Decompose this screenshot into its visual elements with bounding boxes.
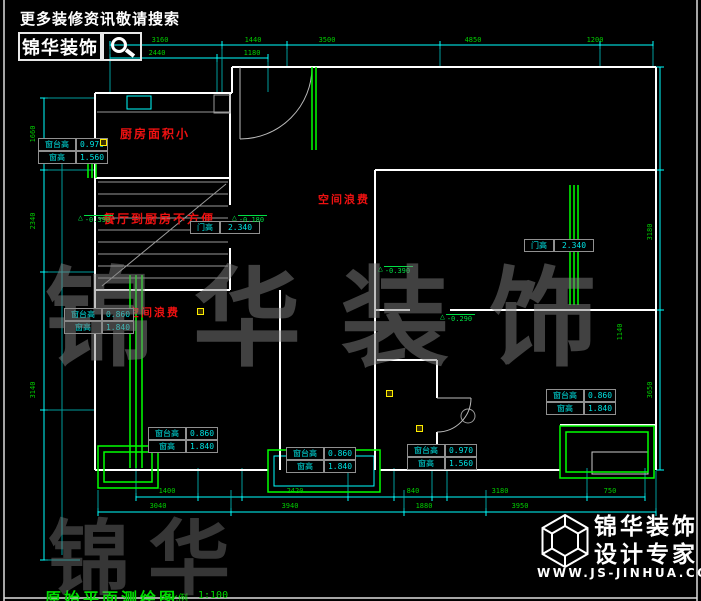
dimension-label: 2440 [149, 49, 166, 57]
dimension-label: 1440 [245, 36, 262, 44]
table-label: 窗台高 [546, 389, 584, 402]
dimension-label: 2340 [29, 213, 37, 230]
watermark-char: 装 [341, 232, 449, 388]
bay-inner-rect [592, 452, 648, 474]
table-label: 窗台高 [148, 427, 186, 440]
dimension-label: 2420 [287, 487, 304, 495]
search-icon-box [102, 32, 142, 61]
dimension-label: 3180 [492, 487, 509, 495]
switch-marker [416, 425, 423, 432]
dimension-label: 1180 [244, 49, 261, 57]
brand-logo-text: 锦华装饰 [22, 34, 98, 60]
watermark-char: 锦 [48, 492, 130, 601]
table-value: 0.860 [186, 427, 218, 440]
table-label: 窗高 [38, 151, 76, 164]
dimension-label: 4850 [465, 36, 482, 44]
table-label: 窗高 [546, 402, 584, 415]
watermark-partial: 锦华 [48, 492, 230, 601]
window-height-table: 窗台高0.860窗高1.840 [148, 427, 218, 453]
dimension-label: 3940 [282, 502, 299, 510]
dimension-label: 1880 [416, 502, 433, 510]
table-label: 窗台高 [407, 444, 445, 457]
table-label: 窗台高 [38, 138, 76, 151]
defect-annotation: 空间浪费 [318, 191, 370, 207]
dimension-label: 3180 [646, 224, 654, 241]
window-height-table: 窗台高0.970窗高1.560 [38, 138, 108, 164]
dimension-label: 1140 [616, 324, 624, 341]
elevation-value: -0.390 [84, 215, 113, 224]
footer-website-link[interactable]: WWW.JS-JINHUA.COM [537, 566, 701, 580]
dimension-label: 3950 [512, 502, 529, 510]
window-height-table: 窗台高0.860窗高1.840 [286, 447, 356, 473]
watermark-char: 华 [148, 492, 230, 601]
watermark-char: 锦 [45, 232, 153, 388]
dimension-label: 750 [604, 487, 617, 495]
elevation-triangle-icon: △ [78, 213, 83, 222]
dimension-label: 3160 [152, 36, 169, 44]
cube-logo [543, 515, 588, 567]
table-value: 0.860 [324, 447, 356, 460]
window-height-table: 窗台高0.970窗高1.560 [407, 444, 477, 470]
defect-annotation: 厨房面积小 [120, 125, 190, 142]
dimension-label: 1660 [29, 126, 37, 143]
dimension-label: 3500 [319, 36, 336, 44]
table-value: 1.840 [186, 440, 218, 453]
cad-floorplan-screenshot: 更多装修资讯敬请搜索 锦华装饰 锦华装饰 设计专家 WWW.JS-JINHUA.… [0, 0, 701, 601]
table-label: 窗高 [286, 460, 324, 473]
table-value: 1.840 [324, 460, 356, 473]
table-value: 1.840 [584, 402, 616, 415]
dimension-label: 840 [407, 487, 420, 495]
dimension-label: 3140 [29, 382, 37, 399]
table-value: 1.560 [445, 457, 477, 470]
elevation-marker: △-0.180 [232, 213, 267, 224]
misc-cyan-details [127, 96, 151, 109]
search-tagline: 更多装修资讯敬请搜索 [20, 8, 180, 29]
elevation-marker: △-0.390 [78, 213, 113, 224]
brand-logo-box: 锦华装饰 [18, 32, 102, 61]
dimension-label: 3650 [646, 382, 654, 399]
switch-marker [386, 390, 393, 397]
table-value: 0.970 [445, 444, 477, 457]
magnifier-handle [125, 48, 135, 57]
watermark-char: 饰 [489, 232, 597, 388]
watermark-char: 华 [193, 232, 301, 388]
elevation-triangle-icon: △ [232, 213, 237, 222]
table-value: 1.560 [76, 151, 108, 164]
window-height-table: 窗台高0.860窗高1.840 [546, 389, 616, 415]
table-value: 0.860 [584, 389, 616, 402]
table-label: 窗台高 [286, 447, 324, 460]
table-label: 窗高 [407, 457, 445, 470]
table-label: 窗高 [148, 440, 186, 453]
dimension-label: 1200 [587, 36, 604, 44]
switch-marker [100, 139, 107, 146]
footer-brand-tagline: 设计专家 [594, 535, 698, 569]
elevation-value: -0.180 [238, 215, 267, 224]
watermark-main: 锦华装饰 [45, 232, 597, 388]
